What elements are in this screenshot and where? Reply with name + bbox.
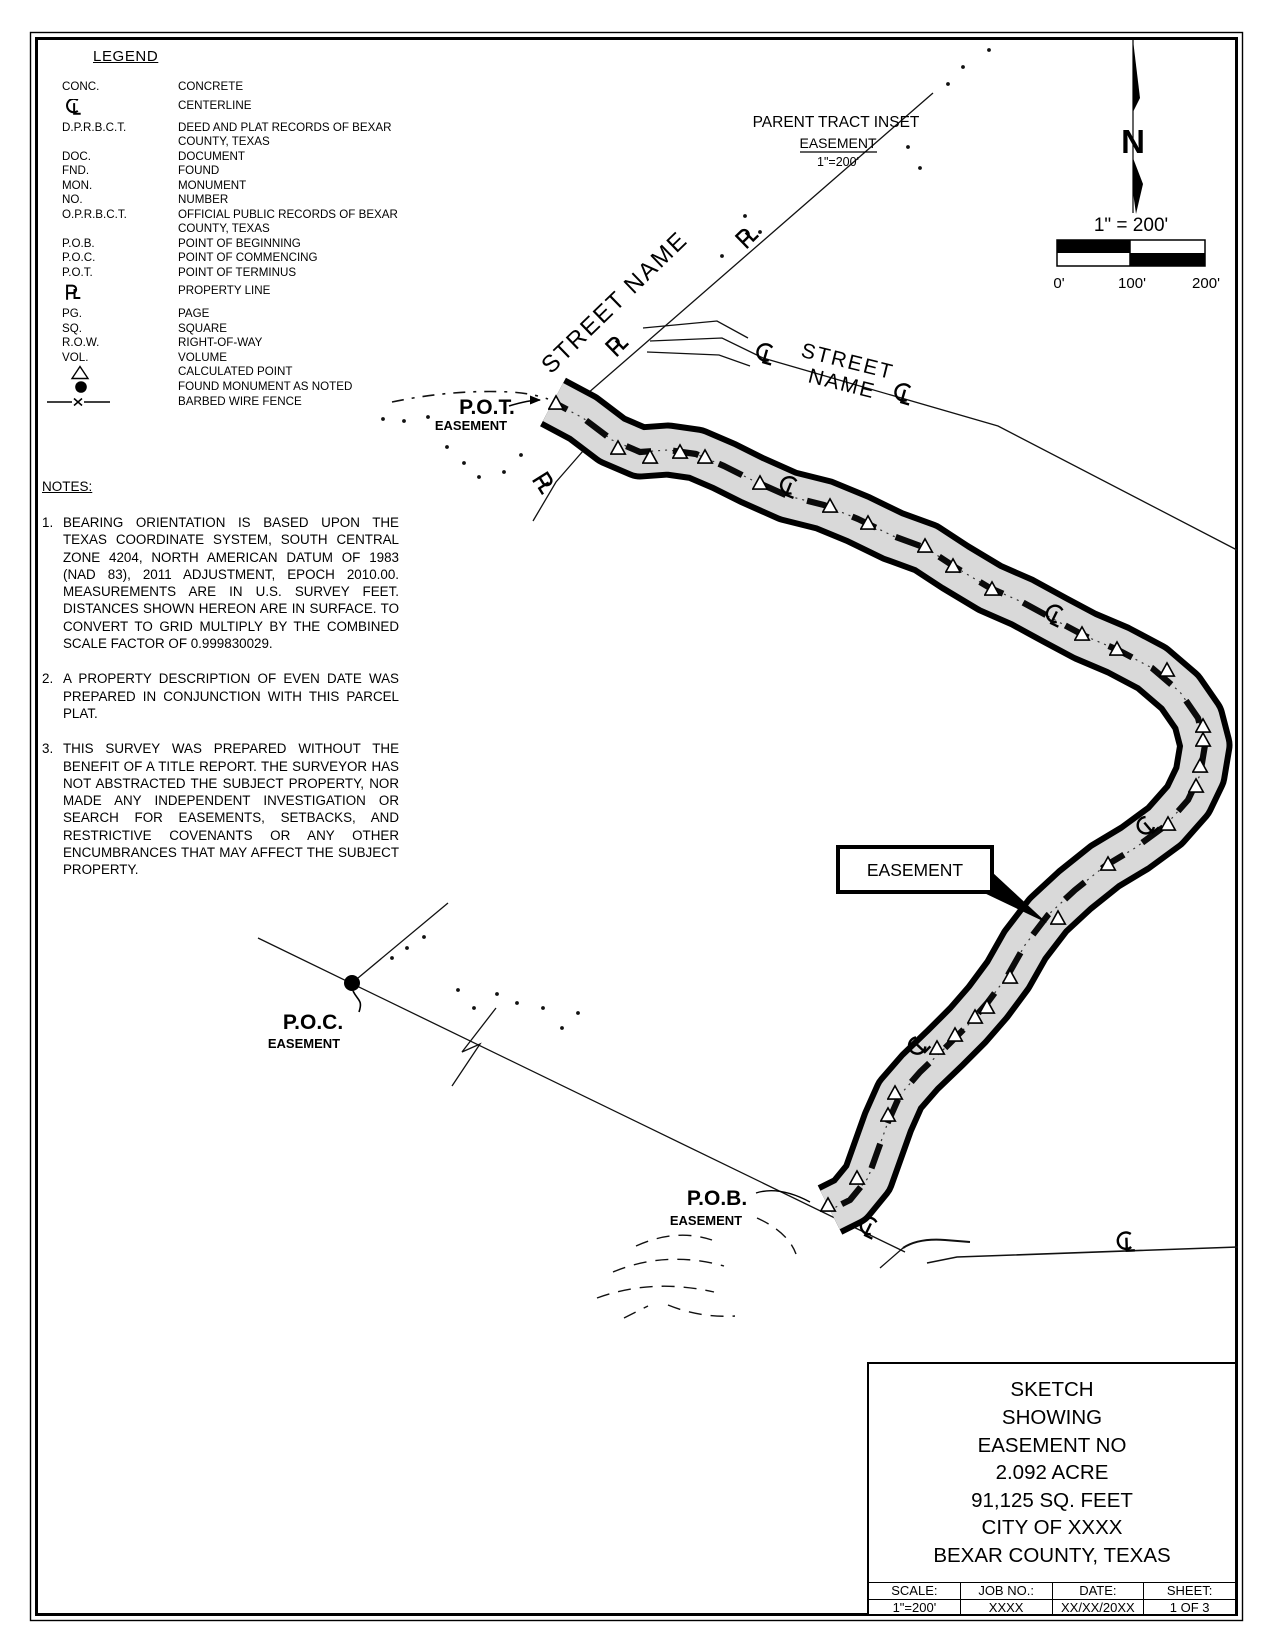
centerline-icon bbox=[62, 99, 92, 117]
legend-abbr: PG. bbox=[62, 307, 178, 322]
easement-callout: EASEMENT bbox=[838, 847, 1047, 923]
poc-leader bbox=[353, 991, 360, 1012]
legend-desc: POINT OF COMMENCING bbox=[178, 251, 422, 266]
legend-desc: CALCULATED POINT bbox=[178, 365, 422, 380]
legend-abbr: MON. bbox=[62, 179, 178, 194]
callout-label: EASEMENT bbox=[867, 860, 964, 880]
pob-curve-line bbox=[903, 1240, 970, 1248]
note-item: 1. BEARING ORIENTATION IS BASED UPON THE… bbox=[42, 514, 399, 652]
note-text: A PROPERTY DESCRIPTION OF EVEN DATE WAS … bbox=[63, 670, 399, 722]
legend-row: CALCULATED POINT bbox=[62, 365, 422, 380]
legend-abbr: P.O.B. bbox=[62, 237, 178, 252]
property-line-icon bbox=[62, 284, 92, 303]
legend-desc: NUMBER bbox=[178, 193, 422, 208]
legend-abbr: SQ. bbox=[62, 322, 178, 337]
pob-sublabel: EASEMENT bbox=[670, 1213, 742, 1228]
title-line: 2.092 ACRE bbox=[869, 1459, 1235, 1487]
street2-edge-line-1 bbox=[643, 321, 748, 338]
legend-desc: CONCRETE bbox=[178, 80, 422, 95]
title-block-main: SKETCH SHOWING EASEMENT NO 2.092 ACRE 91… bbox=[869, 1364, 1235, 1582]
pob-label: P.O.B. bbox=[687, 1187, 747, 1210]
poc-label: P.O.C. bbox=[283, 1011, 343, 1034]
property-line-icon bbox=[533, 473, 556, 496]
property-line-icon bbox=[606, 333, 629, 356]
legend: LEGEND CONC. CONCRETE CENTERLINE D.P.R.B… bbox=[62, 48, 422, 409]
legend-desc: VOLUME bbox=[178, 351, 422, 366]
note-text: THIS SURVEY WAS PREPARED WITHOUT THE BEN… bbox=[63, 740, 399, 878]
legend-desc: PROPERTY LINE bbox=[178, 284, 422, 303]
legend-desc: PAGE bbox=[178, 307, 422, 322]
street2-name-label: STREET NAME bbox=[793, 339, 896, 407]
title-line: BEXAR COUNTY, TEXAS bbox=[869, 1542, 1235, 1570]
note-number: 3. bbox=[42, 740, 63, 878]
legend-row: FND. FOUND bbox=[62, 164, 422, 179]
calculated-point-icon bbox=[70, 365, 94, 380]
scale-tick-200: 200' bbox=[1192, 275, 1220, 292]
legend-row: NO. NUMBER bbox=[62, 193, 422, 208]
bottom-street-centerline bbox=[927, 1247, 1238, 1263]
title-line: SHOWING bbox=[869, 1404, 1235, 1432]
inset-subtitle: EASEMENT bbox=[799, 135, 876, 151]
note-number: 1. bbox=[42, 514, 63, 652]
job-no-field-label: JOB NO.: bbox=[961, 1583, 1052, 1600]
north-label: N bbox=[1121, 123, 1145, 160]
north-arrow: N bbox=[1121, 38, 1145, 214]
scale-field-label: SCALE: bbox=[869, 1583, 960, 1600]
legend-desc: DEED AND PLAT RECORDS OF BEXAR COUNTY, T… bbox=[178, 121, 422, 150]
line-break-symbol bbox=[452, 1008, 496, 1086]
legend-row: D.P.R.B.C.T. DEED AND PLAT RECORDS OF BE… bbox=[62, 121, 422, 150]
title-line: CITY OF XXXX bbox=[869, 1514, 1235, 1542]
pob-leader bbox=[756, 1191, 810, 1202]
note-item: 2. A PROPERTY DESCRIPTION OF EVEN DATE W… bbox=[42, 670, 399, 722]
title-line: EASEMENT NO bbox=[869, 1432, 1235, 1460]
legend-row: DOC. DOCUMENT bbox=[62, 150, 422, 165]
legend-desc: DOCUMENT bbox=[178, 150, 422, 165]
scale-tick-100: 100' bbox=[1118, 275, 1146, 292]
job-no-field-value: XXXX bbox=[961, 1600, 1052, 1616]
inset-title: PARENT TRACT INSET bbox=[753, 114, 920, 131]
easement-corridor bbox=[553, 402, 1205, 1210]
legend-abbr: O.P.R.B.C.T. bbox=[62, 208, 178, 237]
legend-desc: POINT OF TERMINUS bbox=[178, 266, 422, 281]
scale-bar-title: 1" = 200' bbox=[1094, 215, 1168, 236]
legend-row: PG. PAGE bbox=[62, 307, 422, 322]
legend-desc: POINT OF BEGINNING bbox=[178, 237, 422, 252]
legend-abbr: R.O.W. bbox=[62, 336, 178, 351]
found-monument-icon bbox=[344, 975, 360, 991]
legend-row: CENTERLINE bbox=[62, 99, 422, 117]
sheet-field-label: SHEET: bbox=[1144, 1583, 1235, 1600]
legend-abbr: DOC. bbox=[62, 150, 178, 165]
date-field-value: XX/XX/20XX bbox=[1053, 1600, 1144, 1616]
legend-desc: SQUARE bbox=[178, 322, 422, 337]
legend-desc: MONUMENT bbox=[178, 179, 422, 194]
inset-scale: 1"=200' bbox=[817, 155, 859, 169]
title-block-table: SCALE: 1"=200' JOB NO.: XXXX DATE: XX/XX… bbox=[869, 1582, 1235, 1616]
legend-abbr: P.O.C. bbox=[62, 251, 178, 266]
legend-abbr: FND. bbox=[62, 164, 178, 179]
legend-row: PROPERTY LINE bbox=[62, 284, 422, 303]
legend-row: BARBED WIRE FENCE bbox=[62, 395, 422, 410]
title-line: SKETCH bbox=[869, 1376, 1235, 1404]
legend-desc: FOUND MONUMENT AS NOTED bbox=[178, 380, 422, 395]
title-line: 91,125 SQ. FEET bbox=[869, 1487, 1235, 1515]
found-monument-icon bbox=[70, 380, 94, 394]
legend-row: R.O.W. RIGHT-OF-WAY bbox=[62, 336, 422, 351]
property-line-icon bbox=[736, 225, 759, 248]
note-text: BEARING ORIENTATION IS BASED UPON THE TE… bbox=[63, 514, 399, 652]
plat-sheet: EASEMENT N 1" = 200' 0' 100' 200' PARENT… bbox=[0, 0, 1275, 1650]
legend-row: CONC. CONCRETE bbox=[62, 80, 422, 95]
legend-row: P.O.C. POINT OF COMMENCING bbox=[62, 251, 422, 266]
centerline-icon bbox=[1118, 1232, 1135, 1251]
legend-row: SQ. SQUARE bbox=[62, 322, 422, 337]
notes: NOTES: 1. BEARING ORIENTATION IS BASED U… bbox=[42, 479, 399, 897]
legend-desc: CENTERLINE bbox=[178, 99, 422, 117]
legend-title: LEGEND bbox=[93, 48, 422, 65]
legend-desc: RIGHT-OF-WAY bbox=[178, 336, 422, 351]
legend-desc: OFFICIAL PUBLIC RECORDS OF BEXAR COUNTY,… bbox=[178, 208, 422, 237]
scale-field-value: 1"=200' bbox=[869, 1600, 960, 1616]
legend-row: VOL. VOLUME bbox=[62, 351, 422, 366]
note-number: 2. bbox=[42, 670, 63, 722]
legend-row: FOUND MONUMENT AS NOTED bbox=[62, 380, 422, 395]
legend-desc: BARBED WIRE FENCE bbox=[178, 395, 422, 410]
scale-bar: 1" = 200' 0' 100' 200' bbox=[1053, 215, 1220, 292]
legend-row: P.O.B. POINT OF BEGINNING bbox=[62, 237, 422, 252]
street2-edge-line-3 bbox=[647, 352, 750, 366]
legend-abbr: CONC. bbox=[62, 80, 178, 95]
pot-label: P.O.T. bbox=[459, 396, 515, 419]
pob-branch-line bbox=[880, 1248, 903, 1268]
parent-tract-inset-heading: PARENT TRACT INSET EASEMENT 1"=200' bbox=[753, 114, 920, 169]
scale-field: SCALE: 1"=200' bbox=[869, 1583, 961, 1616]
note-item: 3. THIS SURVEY WAS PREPARED WITHOUT THE … bbox=[42, 740, 399, 878]
street1-name-label: STREET NAME bbox=[536, 226, 693, 379]
scale-tick-0: 0' bbox=[1053, 275, 1064, 292]
legend-abbr: D.P.R.B.C.T. bbox=[62, 121, 178, 150]
legend-abbr: NO. bbox=[62, 193, 178, 208]
job-no-field: JOB NO.: XXXX bbox=[961, 1583, 1053, 1616]
poc-sublabel: EASEMENT bbox=[268, 1036, 340, 1051]
legend-row: MON. MONUMENT bbox=[62, 179, 422, 194]
sheet-field: SHEET: 1 OF 3 bbox=[1144, 1583, 1235, 1616]
legend-abbr: P.O.T. bbox=[62, 266, 178, 281]
legend-row: P.O.T. POINT OF TERMINUS bbox=[62, 266, 422, 281]
legend-abbr: VOL. bbox=[62, 351, 178, 366]
creek-dashes bbox=[597, 1218, 796, 1318]
sheet-field-value: 1 OF 3 bbox=[1144, 1600, 1235, 1616]
legend-desc: FOUND bbox=[178, 164, 422, 179]
poc-branch-line bbox=[352, 903, 448, 983]
title-block: SKETCH SHOWING EASEMENT NO 2.092 ACRE 91… bbox=[867, 1362, 1237, 1616]
date-field-label: DATE: bbox=[1053, 1583, 1144, 1600]
notes-title: NOTES: bbox=[42, 479, 399, 494]
legend-row: O.P.R.B.C.T. OFFICIAL PUBLIC RECORDS OF … bbox=[62, 208, 422, 237]
pot-sublabel: EASEMENT bbox=[435, 418, 507, 433]
barbed-wire-fence-icon bbox=[46, 395, 112, 409]
date-field: DATE: XX/XX/20XX bbox=[1053, 1583, 1145, 1616]
